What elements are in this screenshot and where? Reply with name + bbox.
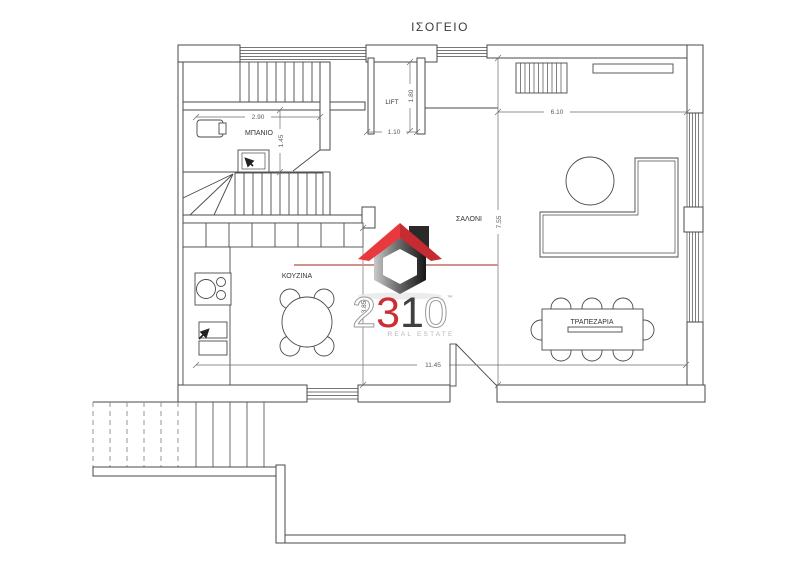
shelf <box>593 64 673 73</box>
interior-staircase <box>183 62 498 228</box>
bathroom-door <box>293 150 320 171</box>
window-bottom <box>307 389 358 400</box>
kitchen-table <box>280 289 334 356</box>
logo-subtitle: REAL ESTATE <box>387 331 454 338</box>
window-top-1 <box>240 48 366 60</box>
kitchen-cabinets <box>183 223 363 247</box>
kitchen-counter <box>183 247 230 385</box>
bathroom-fixtures <box>197 120 320 172</box>
window-right-1 <box>690 113 699 207</box>
stair-winders <box>183 174 233 215</box>
room-label-kitchen: ΚΟΥΖΙΝΑ <box>282 273 313 280</box>
logo-trademark: ™ <box>447 295 453 301</box>
logo-house-icon <box>358 223 442 294</box>
kitchen-fixtures <box>183 223 363 385</box>
living-room-fixtures <box>516 63 678 257</box>
dim-living-width: 6.10 <box>551 109 564 116</box>
terrace-wall-horizontal <box>285 535 625 543</box>
dim-living-depth: 7.55 <box>496 215 503 228</box>
floor-plan-image: ΙΣΟΓΕΙΟ <box>0 0 800 566</box>
room-label-bathroom: ΜΠΑΝΙΟ <box>245 130 274 137</box>
window-right-2 <box>690 232 699 322</box>
dining-set <box>531 298 654 361</box>
radiator <box>516 63 567 93</box>
logo-number: 2310 <box>352 289 448 337</box>
room-label-lift: LIFT <box>385 99 398 106</box>
room-label-living: ΣΑΛΟΝΙ <box>456 216 482 223</box>
external-stairs <box>93 402 625 543</box>
floor-plan-svg: ΙΣΟΓΕΙΟ <box>0 0 800 566</box>
dim-lift-depth: 1.80 <box>408 89 415 102</box>
dim-lift-width: 1.10 <box>388 129 401 136</box>
terrace-wall-vertical <box>276 465 285 543</box>
dim-bathroom-depth: 1.45 <box>278 134 285 147</box>
room-label-dining: ΤΡΑΠΕΖΑΡΙΑ <box>570 319 613 326</box>
dim-bathroom-width: 2.90 <box>252 114 265 121</box>
coffee-table <box>566 157 614 205</box>
dim-overall-width: 11.45 <box>425 362 441 369</box>
lift-shaft <box>368 58 425 134</box>
window-top-2 <box>437 48 487 57</box>
page-title: ΙΣΟΓΕΙΟ <box>411 20 469 34</box>
